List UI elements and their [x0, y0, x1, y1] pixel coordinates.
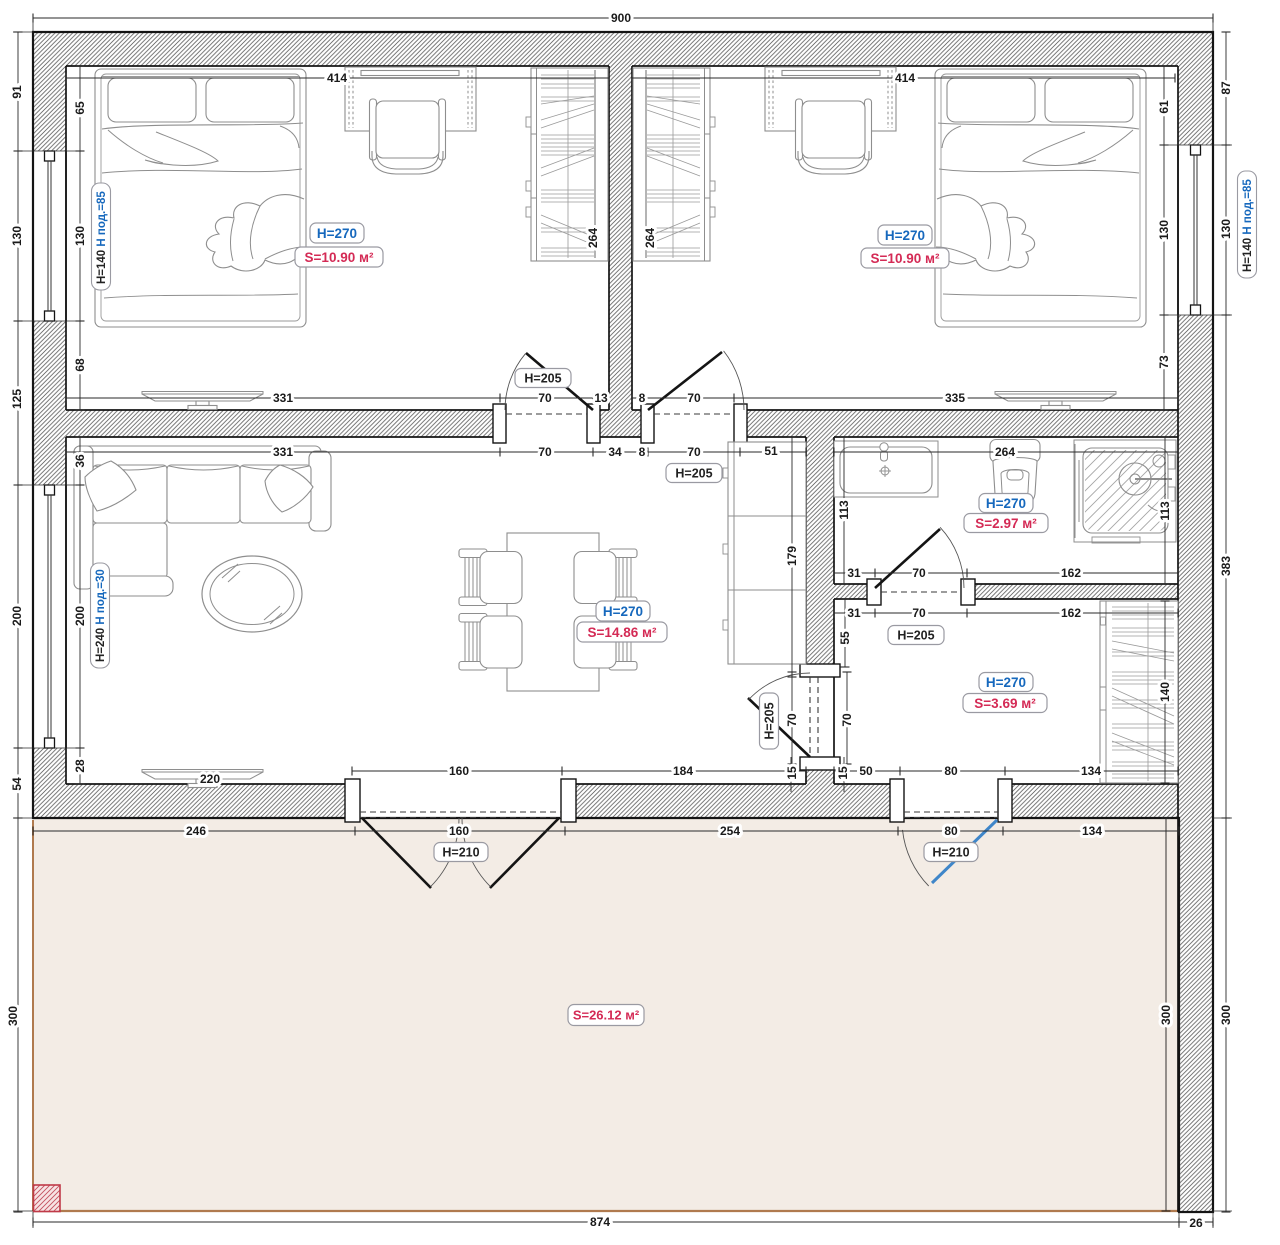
svg-text:414: 414 [895, 71, 915, 85]
svg-text:8: 8 [639, 391, 646, 405]
svg-text:246: 246 [186, 824, 206, 838]
svg-text:130: 130 [10, 226, 24, 246]
svg-text:331: 331 [273, 445, 293, 459]
svg-text:54: 54 [10, 777, 24, 791]
svg-text:113: 113 [837, 500, 851, 520]
svg-text:H=270: H=270 [986, 675, 1026, 690]
svg-text:H=270: H=270 [603, 604, 643, 619]
svg-text:28: 28 [73, 759, 87, 773]
svg-text:70: 70 [538, 445, 552, 459]
svg-text:65: 65 [73, 101, 87, 115]
svg-text:15: 15 [836, 766, 850, 780]
svg-text:H=210: H=210 [442, 846, 479, 860]
svg-text:31: 31 [847, 566, 861, 580]
svg-text:162: 162 [1061, 566, 1081, 580]
svg-text:H=140 H под.=85: H=140 H под.=85 [1242, 179, 1254, 272]
svg-text:S=10.90 м²: S=10.90 м² [871, 251, 940, 266]
svg-text:H=270: H=270 [986, 496, 1026, 511]
svg-text:383: 383 [1219, 556, 1233, 576]
svg-text:70: 70 [912, 606, 926, 620]
svg-text:68: 68 [73, 358, 87, 372]
svg-text:70: 70 [785, 713, 799, 727]
svg-text:184: 184 [673, 764, 693, 778]
svg-text:130: 130 [1157, 220, 1171, 240]
svg-text:H=205: H=205 [675, 467, 712, 481]
svg-text:15: 15 [785, 766, 799, 780]
svg-text:H=205: H=205 [524, 372, 561, 386]
svg-text:H=210: H=210 [932, 846, 969, 860]
svg-text:160: 160 [449, 824, 469, 838]
svg-text:61: 61 [1157, 100, 1171, 114]
svg-text:264: 264 [643, 228, 657, 248]
svg-text:300: 300 [1219, 1005, 1233, 1025]
svg-text:26: 26 [1189, 1216, 1203, 1230]
svg-text:300: 300 [1159, 1005, 1173, 1025]
svg-text:179: 179 [785, 546, 799, 566]
svg-text:H=140 H под.=85: H=140 H под.=85 [96, 191, 108, 284]
svg-text:H=270: H=270 [885, 228, 925, 243]
svg-text:S=3.69 м²: S=3.69 м² [974, 696, 1036, 711]
svg-text:87: 87 [1219, 81, 1233, 95]
svg-text:130: 130 [1219, 219, 1233, 239]
svg-text:134: 134 [1081, 764, 1101, 778]
svg-text:70: 70 [687, 391, 701, 405]
svg-text:130: 130 [73, 226, 87, 246]
svg-text:140: 140 [1158, 682, 1172, 702]
svg-text:S=2.97 м²: S=2.97 м² [975, 516, 1037, 531]
svg-text:91: 91 [10, 85, 24, 99]
svg-text:264: 264 [586, 228, 600, 248]
svg-text:134: 134 [1082, 824, 1102, 838]
svg-text:73: 73 [1157, 355, 1171, 369]
svg-text:900: 900 [611, 11, 631, 25]
svg-text:70: 70 [687, 445, 701, 459]
svg-text:160: 160 [449, 764, 469, 778]
svg-text:200: 200 [10, 606, 24, 626]
svg-text:S=26.12 м²: S=26.12 м² [573, 1008, 640, 1023]
svg-text:335: 335 [945, 391, 965, 405]
svg-text:70: 70 [912, 566, 926, 580]
svg-text:36: 36 [73, 454, 87, 468]
svg-text:264: 264 [995, 445, 1015, 459]
svg-text:H=240 H под.=30: H=240 H под.=30 [95, 569, 107, 662]
svg-text:H=205: H=205 [897, 629, 934, 643]
svg-text:31: 31 [847, 606, 861, 620]
svg-text:S=10.90 м²: S=10.90 м² [305, 250, 374, 265]
svg-text:220: 220 [200, 772, 220, 786]
svg-text:70: 70 [840, 713, 854, 727]
svg-text:50: 50 [859, 764, 873, 778]
svg-text:55: 55 [838, 631, 852, 645]
svg-text:162: 162 [1061, 606, 1081, 620]
svg-text:13: 13 [594, 391, 608, 405]
svg-text:34: 34 [608, 445, 622, 459]
svg-text:331: 331 [273, 391, 293, 405]
svg-text:8: 8 [639, 445, 646, 459]
svg-text:874: 874 [590, 1215, 610, 1229]
svg-text:300: 300 [6, 1006, 20, 1026]
svg-text:80: 80 [944, 764, 958, 778]
svg-text:H=270: H=270 [317, 226, 357, 241]
svg-text:200: 200 [73, 606, 87, 626]
svg-text:125: 125 [10, 389, 24, 409]
svg-text:70: 70 [538, 391, 552, 405]
svg-text:S=14.86 м²: S=14.86 м² [588, 625, 657, 640]
svg-text:H=205: H=205 [763, 702, 777, 739]
svg-text:51: 51 [764, 444, 778, 458]
svg-text:80: 80 [944, 824, 958, 838]
svg-text:254: 254 [720, 824, 740, 838]
svg-text:414: 414 [327, 71, 347, 85]
svg-text:113: 113 [1158, 501, 1172, 521]
